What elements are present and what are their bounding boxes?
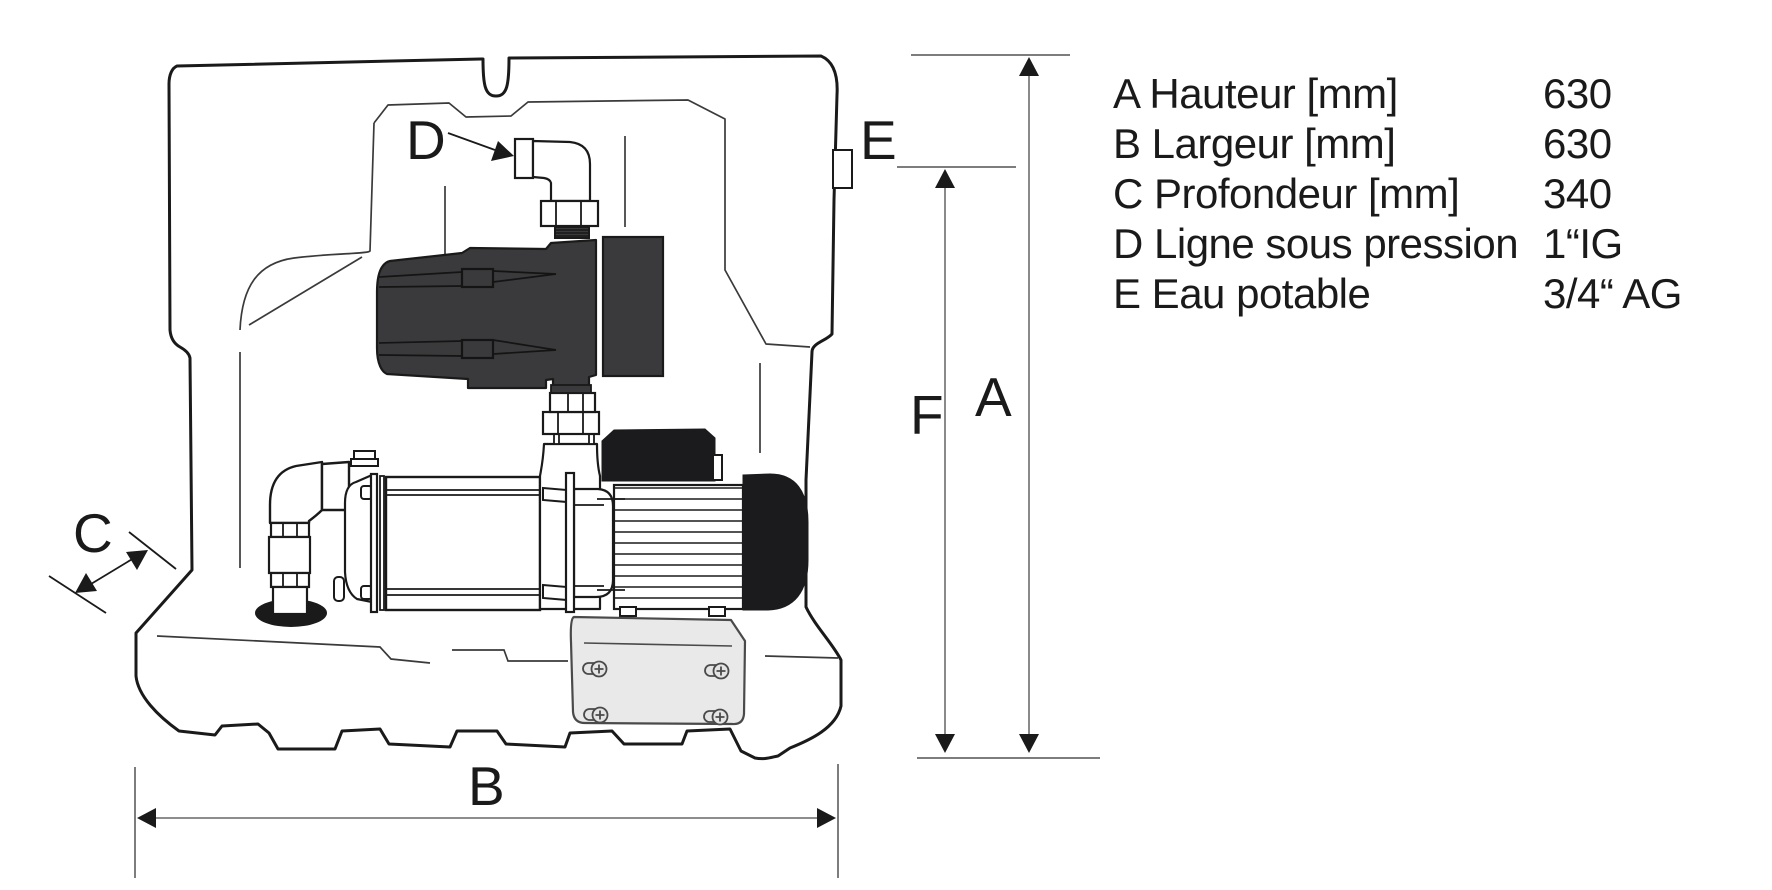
svg-text:A: A xyxy=(975,366,1012,428)
svg-text:630: 630 xyxy=(1543,70,1612,117)
svg-text:B: B xyxy=(468,755,505,817)
svg-text:D: D xyxy=(406,109,446,171)
svg-text:1“IG: 1“IG xyxy=(1543,220,1623,267)
svg-text:F: F xyxy=(910,384,944,446)
svg-text:B Largeur [mm]: B Largeur [mm] xyxy=(1113,120,1395,167)
svg-text:A Hauteur [mm]: A Hauteur [mm] xyxy=(1113,70,1398,117)
svg-text:340: 340 xyxy=(1543,170,1612,217)
svg-text:D Ligne sous pression: D Ligne sous pression xyxy=(1113,220,1518,267)
svg-text:E: E xyxy=(860,109,897,171)
svg-text:C Profondeur [mm]: C Profondeur [mm] xyxy=(1113,170,1459,217)
svg-text:E Eau potable: E Eau potable xyxy=(1113,270,1370,317)
svg-text:3/4“ AG: 3/4“ AG xyxy=(1543,270,1682,317)
svg-text:630: 630 xyxy=(1543,120,1612,167)
svg-text:C: C xyxy=(73,502,113,564)
